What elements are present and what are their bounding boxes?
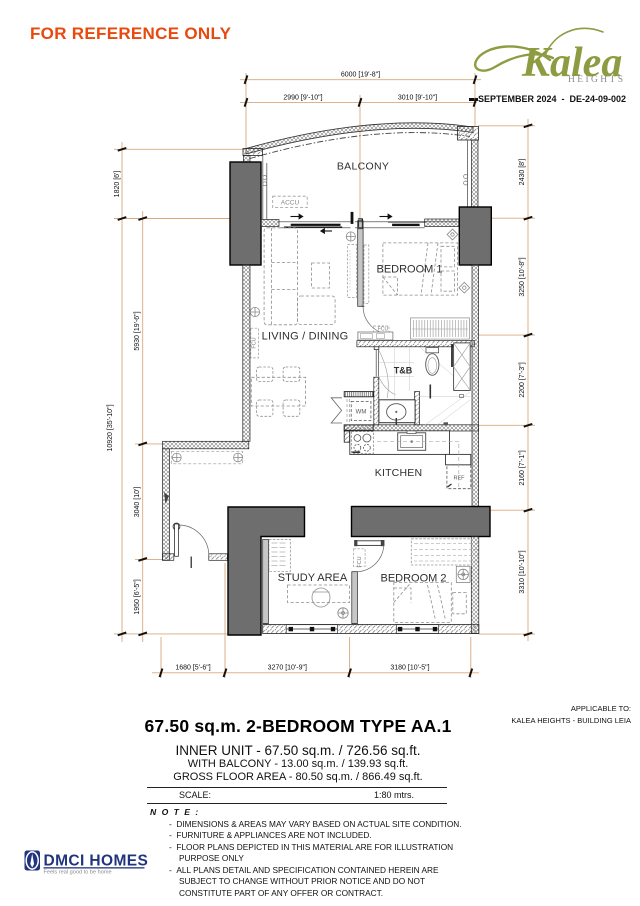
svg-text:REF: REF <box>454 476 466 482</box>
svg-text:BEDROOM 2: BEDROOM 2 <box>380 573 446 585</box>
svg-text:2160 [7'-1"]: 2160 [7'-1"] <box>519 450 526 485</box>
svg-text:T&B: T&B <box>394 366 413 376</box>
svg-text:WM: WM <box>356 410 367 416</box>
svg-text:BEDROOM 1: BEDROOM 1 <box>376 264 442 276</box>
svg-text:2200 [7'-3"]: 2200 [7'-3"] <box>519 362 526 397</box>
svg-text:6000 [19'-8"]: 6000 [19'-8"] <box>341 72 380 79</box>
svg-text:1680 [5'-6"]: 1680 [5'-6"] <box>175 665 210 672</box>
svg-text:3270 [10'-9"]: 3270 [10'-9"] <box>268 665 307 672</box>
svg-text:STUDY AREA: STUDY AREA <box>278 572 348 584</box>
svg-text:3040 [10']: 3040 [10'] <box>134 487 141 518</box>
svg-text:LIVING / DINING: LIVING / DINING <box>262 331 349 343</box>
svg-text:DMCI HOMES: DMCI HOMES <box>44 853 149 870</box>
svg-text:2990 [9'-10"]: 2990 [9'-10"] <box>283 94 322 101</box>
svg-text:2430 [8']: 2430 [8'] <box>519 159 526 186</box>
svg-text:FCU: FCU <box>357 556 363 567</box>
svg-text:3250 [10'-8"]: 3250 [10'-8"] <box>519 257 526 296</box>
svg-text:3010 [9'-10"]: 3010 [9'-10"] <box>398 94 437 101</box>
svg-text:1820 [6']: 1820 [6'] <box>114 171 121 198</box>
svg-text:Feels real good to be home: Feels real good to be home <box>44 870 112 876</box>
svg-text:KITCHEN: KITCHEN <box>375 467 423 479</box>
svg-text:ACCU: ACCU <box>281 200 300 207</box>
svg-text:FCU: FCU <box>252 337 258 348</box>
svg-text:10920 [35'-10"]: 10920 [35'-10"] <box>107 404 114 451</box>
svg-text:5930 [19'-6"]: 5930 [19'-6"] <box>134 311 141 350</box>
svg-text:BALCONY: BALCONY <box>337 161 389 173</box>
svg-text:1950 [6'-5"]: 1950 [6'-5"] <box>134 579 141 614</box>
svg-text:3180 [10'-5"]: 3180 [10'-5"] <box>390 665 429 672</box>
svg-text:3310 [10'-10"]: 3310 [10'-10"] <box>519 550 526 593</box>
